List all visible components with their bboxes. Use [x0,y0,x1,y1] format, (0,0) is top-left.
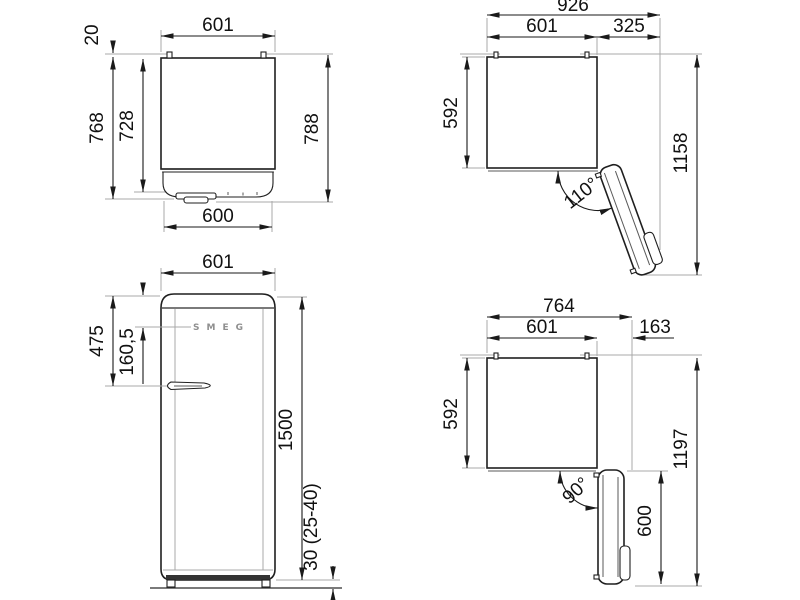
fridge-body-plan [487,358,597,468]
dimension-drawing-page: 601 20 768 728 788 600 [0,0,800,600]
dim-label-logo-offset: 160,5 [117,328,138,376]
dim-label-width-total: 926 [557,0,589,16]
diagram-canvas: 601 20 768 728 788 600 [0,0,800,600]
dim-label-angle: 90° [559,473,594,508]
dim-label-feet-height: 30 (25-40) [301,483,322,571]
door-handle-plan [176,193,216,203]
dim-label-width-total: 764 [543,296,575,317]
dim-label-hinge-depth: 20 [82,24,103,45]
fridge-front [161,294,275,580]
door-handle-front [168,382,211,390]
fridge-body-plan [487,57,597,168]
fridge-body-plan [161,58,275,169]
view-front: SMEG 601 475 160,5 1500 30 (25-40) [87,252,342,600]
dim-label-handle-offset: 475 [87,325,108,357]
dim-label-width-body: 601 [526,16,558,37]
dim-label-height: 1500 [276,409,297,451]
dim-label-width: 601 [202,252,234,273]
dim-label-door-width: 600 [635,505,656,537]
door-open-90 [594,470,630,584]
dim-label-depth-body: 768 [87,112,108,144]
dim-label-width-top: 601 [202,15,234,36]
dim-label-depth-door: 728 [117,110,138,142]
dim-label-depth-body: 592 [441,398,462,430]
dim-label-width-body: 601 [526,317,558,338]
dim-label-door-projection: 325 [613,16,645,37]
door-handle [620,546,630,580]
dim-label-depth-total: 788 [302,113,323,145]
door-open-110 [594,160,665,279]
view-plan-open-90: 90° 764 601 163 592 1197 600 [441,296,702,586]
dim-label-side-projection: 163 [639,317,671,338]
view-plan-open-110: 110° 926 601 325 592 1158 [441,0,702,278]
dim-label-width-door: 600 [202,206,234,227]
dim-label-depth-total: 1158 [671,133,692,174]
plinth [166,575,270,580]
dim-label-depth-body: 592 [441,97,462,129]
feet [167,580,270,587]
hinge-pins [167,52,266,58]
dim-label-depth-total: 1197 [671,429,692,470]
view-plan-closed: 601 20 768 728 788 600 [82,15,333,232]
smeg-logo: SMEG [193,323,250,333]
